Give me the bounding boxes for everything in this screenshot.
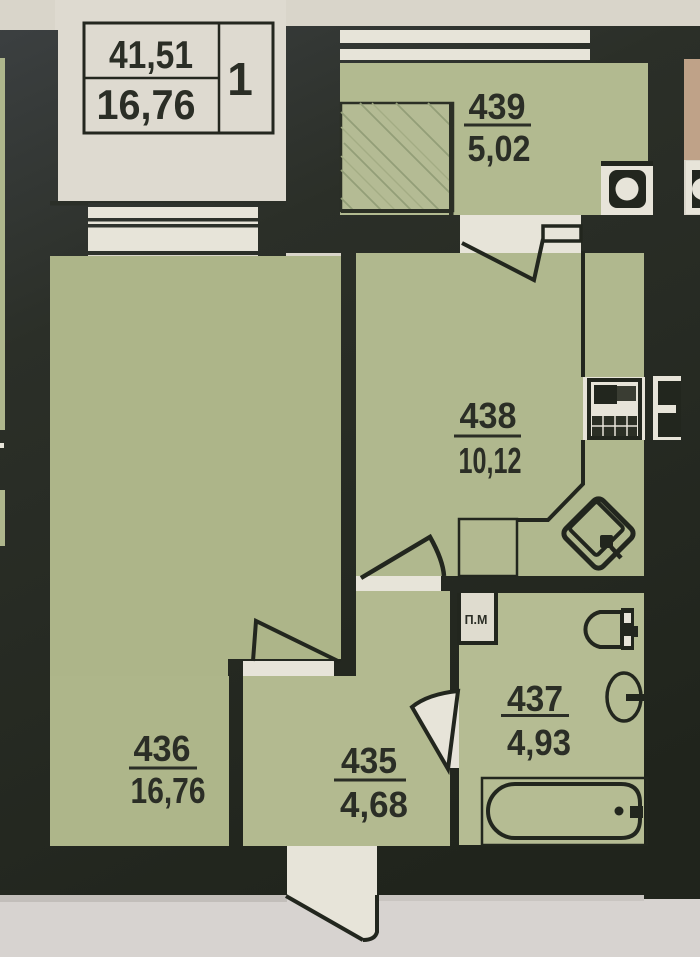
svg-text:10,12: 10,12 xyxy=(459,441,522,482)
svg-text:436: 436 xyxy=(134,729,191,769)
svg-text:435: 435 xyxy=(341,742,397,781)
svg-text:4,93: 4,93 xyxy=(507,724,571,764)
svg-text:41,51: 41,51 xyxy=(109,33,193,77)
svg-text:16,76: 16,76 xyxy=(131,771,206,811)
svg-text:16,76: 16,76 xyxy=(96,81,195,128)
svg-text:439: 439 xyxy=(469,87,526,127)
svg-text:П.М: П.М xyxy=(465,613,488,627)
svg-text:437: 437 xyxy=(507,680,563,719)
svg-text:1: 1 xyxy=(227,53,253,105)
svg-text:438: 438 xyxy=(460,396,517,436)
svg-text:5,02: 5,02 xyxy=(468,129,531,169)
svg-text:4,68: 4,68 xyxy=(340,785,408,826)
